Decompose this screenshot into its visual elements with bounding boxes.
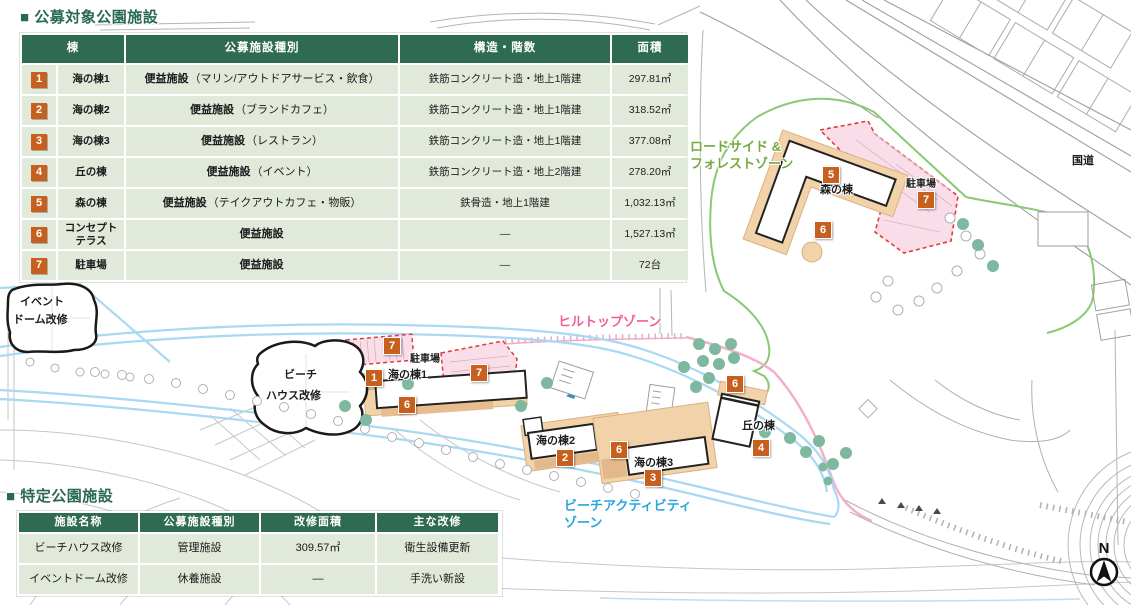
bottom-blue-line <box>600 598 1080 601</box>
t2-row1-name: ビーチハウス改修 <box>19 534 138 563</box>
map-marker-3-umi3: 3 <box>644 469 662 487</box>
t2-row2-area: — <box>261 565 375 594</box>
section1-title: ■ 公募対象公園施設 <box>20 6 158 27</box>
t1-row5-name: 森の棟 <box>58 189 124 218</box>
t1-row6-type: 便益施設 <box>126 220 398 249</box>
t2-row1-work: 衛生設備更新 <box>377 534 498 563</box>
t1-row1-name: 海の棟1 <box>58 65 124 94</box>
t1-row4-type: 便益施設（イベント） <box>126 158 398 187</box>
t1-row7-area: 72台 <box>612 251 688 280</box>
t1-row4-area: 278.20㎡ <box>612 158 688 187</box>
t1-row3-area: 377.08㎡ <box>612 127 688 156</box>
zone-label-roadside-forest: ロードサイド & フォレストゾーン <box>690 139 793 173</box>
t1-row7-structure: — <box>400 251 610 280</box>
badge-1: 1 <box>31 72 47 88</box>
table-specified-park-facilities: 施設名称 公募施設種別 改修面積 主な改修 ビーチハウス改修 管理施設 309.… <box>17 511 502 596</box>
t1-row2-structure: 鉄筋コンクリート造・地上1階建 <box>400 96 610 125</box>
t2-row2-work: 手洗い新設 <box>377 565 498 594</box>
t2-row2-name: イベントドーム改修 <box>19 565 138 594</box>
map-marker-2-umi2: 2 <box>556 449 574 467</box>
t1-row3-structure: 鉄筋コンクリート造・地上1階建 <box>400 127 610 156</box>
map-marker-4-oka: 4 <box>752 439 770 457</box>
t1-header-structure: 構造・階数 <box>400 35 610 63</box>
t2-header-work: 主な改修 <box>377 513 498 532</box>
badge-2: 2 <box>31 103 47 119</box>
label-umi1: 海の棟1 <box>388 366 427 382</box>
map-marker-6-oka: 6 <box>726 375 744 393</box>
label-umi3: 海の棟3 <box>634 454 673 470</box>
t1-row7-type: 便益施設 <box>126 251 398 280</box>
label-umi2: 海の棟2 <box>536 432 575 448</box>
label-parking-top: 駐車場 <box>906 175 936 190</box>
section2-title: ■ 特定公園施設 <box>6 485 113 506</box>
t1-row2-area: 318.52㎡ <box>612 96 688 125</box>
t1-row2-no: 2 <box>22 96 56 125</box>
t1-row1-type: 便益施設（マリン/アウトドアサービス・飲食） <box>126 65 398 94</box>
t1-row2-name: 海の棟2 <box>58 96 124 125</box>
north-arrow-icon <box>1088 556 1120 588</box>
zone-label-beach-activity: ビーチアクティビティ ゾーン <box>564 498 692 532</box>
t1-row3-name: 海の棟3 <box>58 127 124 156</box>
t2-row1-type: 管理施設 <box>140 534 259 563</box>
t1-row4-name: 丘の棟 <box>58 158 124 187</box>
label-parking-mid: 駐車場 <box>410 350 440 365</box>
t1-header-type: 公募施設種別 <box>126 35 398 63</box>
t1-row6-area: 1,527.13㎡ <box>612 220 688 249</box>
t1-row7-name: 駐車場 <box>58 251 124 280</box>
t1-header-area: 面積 <box>612 35 688 63</box>
zone-label-hilltop: ヒルトップゾーン <box>558 314 661 331</box>
t1-row6-no: 6 <box>22 220 56 249</box>
t2-header-name: 施設名称 <box>19 513 138 532</box>
t1-row5-area: 1,032.13㎡ <box>612 189 688 218</box>
map-marker-1-umi1: 1 <box>365 369 383 387</box>
t2-header-area: 改修面積 <box>261 513 375 532</box>
site-plan-page: ロードサイド & フォレストゾーン ヒルトップゾーン ビーチアクティビティ ゾー… <box>0 0 1131 605</box>
map-marker-6-mori: 6 <box>814 221 832 239</box>
badge-5: 5 <box>31 196 47 212</box>
map-marker-6-umi1: 6 <box>398 396 416 414</box>
t2-row1-area: 309.57㎡ <box>261 534 375 563</box>
map-marker-7-parking-top: 7 <box>917 191 935 209</box>
t1-row3-no: 3 <box>22 127 56 156</box>
t1-row1-no: 1 <box>22 65 56 94</box>
t1-row4-no: 4 <box>22 158 56 187</box>
map-marker-5-mori: 5 <box>822 166 840 184</box>
t1-row4-structure: 鉄筋コンクリート造・地上2階建 <box>400 158 610 187</box>
label-event-dome-1: イベント <box>20 293 64 309</box>
map-marker-6-umi3: 6 <box>610 441 628 459</box>
t1-row5-type: 便益施設（テイクアウトカフェ・物販） <box>126 189 398 218</box>
label-national-road: 国道 <box>1072 152 1094 168</box>
t1-row5-structure: 鉄骨造・地上1階建 <box>400 189 610 218</box>
map-marker-7-parking-large: 7 <box>470 364 488 382</box>
north-compass: N <box>1086 542 1122 593</box>
badge-6: 6 <box>31 227 47 243</box>
table-target-park-facilities: 棟 公募施設種別 構造・階数 面積 1 海の棟1 便益施設（マリン/アウトドアサ… <box>20 33 686 282</box>
t1-row2-type: 便益施設（ブランドカフェ） <box>126 96 398 125</box>
compass-n-label: N <box>1086 542 1122 556</box>
t1-row1-structure: 鉄筋コンクリート造・地上1階建 <box>400 65 610 94</box>
t2-header-type: 公募施設種別 <box>140 513 259 532</box>
t1-row6-name: コンセプトテラス <box>58 220 124 249</box>
badge-7: 7 <box>31 258 47 274</box>
t2-row2-type: 休養施設 <box>140 565 259 594</box>
map-marker-7-parking-small: 7 <box>383 337 401 355</box>
label-beach-house-2: ハウス改修 <box>266 387 321 403</box>
badge-3: 3 <box>31 134 47 150</box>
t1-row6-structure: — <box>400 220 610 249</box>
t1-row5-no: 5 <box>22 189 56 218</box>
t1-row3-type: 便益施設（レストラン） <box>126 127 398 156</box>
t1-row1-area: 297.81㎡ <box>612 65 688 94</box>
label-event-dome-2: ドーム改修 <box>13 311 68 327</box>
t1-row7-no: 7 <box>22 251 56 280</box>
t1-header-building: 棟 <box>22 35 124 63</box>
badge-4: 4 <box>31 165 47 181</box>
label-beach-house-1: ビーチ <box>284 366 317 382</box>
tree-triangles <box>878 498 941 514</box>
label-oka: 丘の棟 <box>742 417 775 433</box>
